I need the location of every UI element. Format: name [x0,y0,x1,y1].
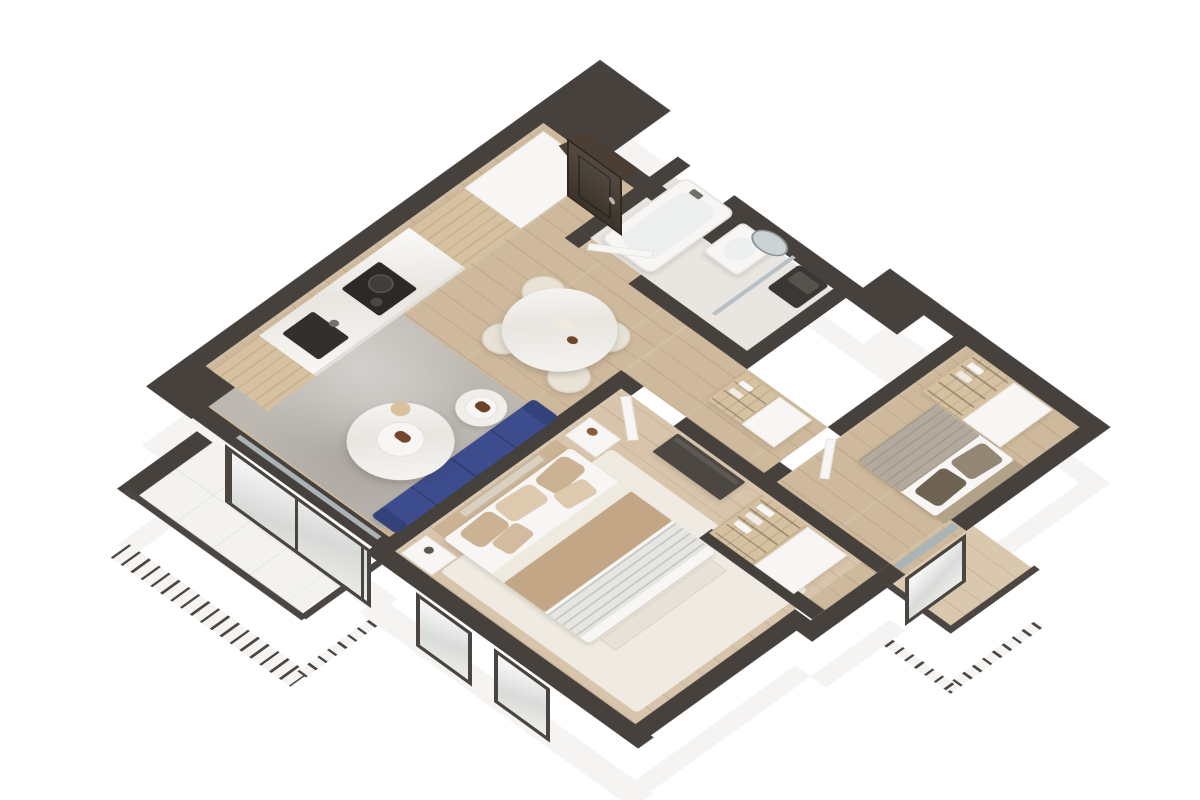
bedroom-window-2 [494,648,550,743]
bedroom-window-1 [416,592,472,687]
floorplan-3d-render [0,0,1200,800]
vertical-faces-layer [0,0,1200,800]
balcony-sliding-door-glass [225,444,371,608]
balcony-right-window [905,534,966,626]
entrance-door-face [567,138,622,236]
